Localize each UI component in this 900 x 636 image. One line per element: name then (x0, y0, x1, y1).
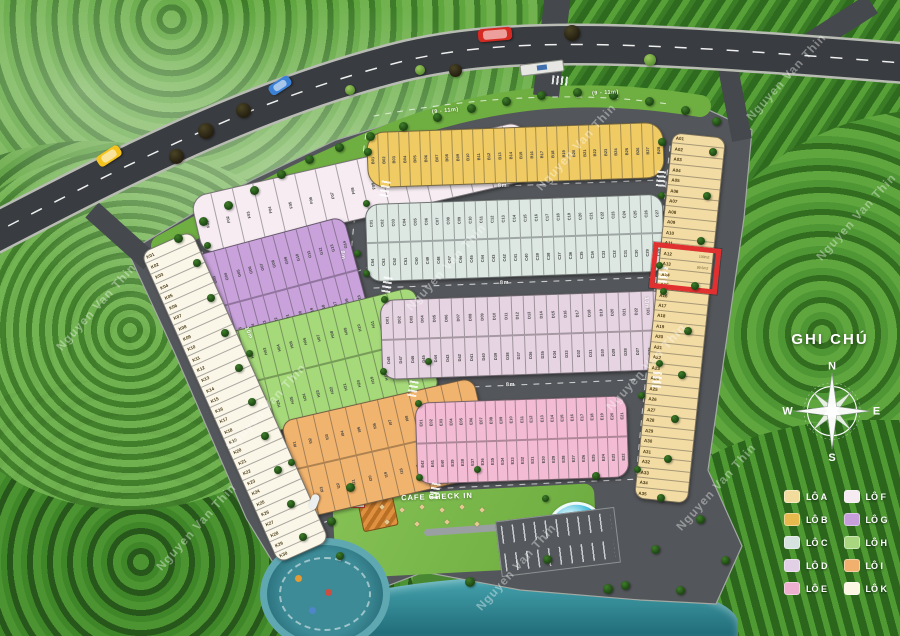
tree-icon (664, 455, 672, 463)
tree-icon (346, 483, 355, 492)
tree-icon (363, 200, 370, 207)
tree-icon (381, 296, 388, 303)
tree-icon (345, 85, 355, 95)
compass-south: S (828, 452, 835, 464)
legend-column: LÔ F LÔ G LÔ H LÔ I LÔ K (844, 490, 888, 595)
tree-icon (678, 371, 686, 379)
tree-icon (671, 415, 679, 423)
tree-icon (415, 65, 425, 75)
tree-icon (204, 242, 211, 249)
tree-icon (592, 472, 600, 480)
tree-icon (676, 586, 685, 595)
legend-title: GHI CHÚ (760, 331, 900, 348)
crosswalk (552, 75, 569, 86)
legend-label: LÔ I (866, 561, 884, 571)
tree-icon (658, 138, 666, 146)
tree-icon (543, 555, 552, 564)
legend-label: LÔ F (866, 492, 887, 502)
road-width-label: 8m (506, 382, 515, 388)
legend: LÔ A LÔ B LÔ C LÔ D LÔ E LÔ F LÔ G LÔ H … (784, 490, 888, 595)
tree-icon (425, 358, 432, 365)
legend-item-lo-b: LÔ B (784, 513, 828, 526)
crosswalk (658, 266, 668, 283)
swatch-lo-g (844, 513, 860, 526)
legend-item-lo-i: LÔ I (844, 559, 888, 572)
tree-icon (327, 517, 336, 526)
tree-icon (465, 577, 475, 587)
block-b: B01B02B03B04B05B06B07B08B09B10B11B12B13B… (366, 122, 665, 188)
swatch-lo-e (784, 582, 800, 595)
tree-icon (287, 500, 295, 508)
tree-icon (697, 237, 705, 245)
tree-icon (288, 459, 295, 466)
tree-icon (449, 64, 462, 77)
tree-icon (224, 201, 233, 210)
legend-item-lo-k: LÔ K (844, 582, 888, 595)
legend-label: LÔ H (866, 538, 888, 548)
tree-icon (660, 288, 667, 295)
tree-icon (467, 104, 476, 113)
tree-icon (363, 270, 370, 277)
tree-icon (305, 155, 314, 164)
branch-road (92, 210, 150, 262)
tree-icon (221, 329, 229, 337)
playground-equipment (325, 589, 332, 596)
tree-icon (366, 132, 375, 141)
crosswalk (656, 170, 666, 187)
tree-icon (415, 400, 422, 407)
tree-icon (399, 122, 408, 131)
tree-icon (235, 364, 243, 372)
swatch-lo-h (844, 536, 860, 549)
tree-icon (712, 117, 721, 126)
compass-north: N (828, 360, 836, 372)
legend-item-lo-g: LÔ G (844, 513, 888, 526)
tree-icon (250, 186, 259, 195)
plot-E22: E22 (618, 437, 628, 476)
legend-label: LÔ E (806, 584, 827, 594)
tree-icon (474, 466, 481, 473)
swatch-lo-k (844, 582, 860, 595)
tree-icon (198, 123, 214, 139)
tree-icon (696, 515, 705, 524)
legend-item-lo-f: LÔ F (844, 490, 888, 503)
legend-item-lo-c: LÔ C (784, 536, 828, 549)
tree-icon (261, 432, 269, 440)
block-d: D01D02D03D04D05D06D07D08D09D10D11D12D13D… (380, 290, 669, 380)
tree-icon (684, 327, 692, 335)
playground-equipment (295, 575, 302, 582)
plot-row: D48D47D46D45D44D43D42D41D40D39D38D37D36D… (382, 329, 667, 379)
tree-icon (657, 494, 665, 502)
tree-icon (644, 54, 656, 66)
tree-icon (603, 584, 613, 594)
legend-label: LÔ B (806, 515, 828, 525)
tree-icon (336, 552, 344, 560)
plot-C27: C27 (652, 195, 663, 232)
tree-icon (277, 170, 286, 179)
crosswalk (652, 371, 662, 388)
tree-icon (274, 466, 282, 474)
tree-icon (638, 392, 645, 399)
block-c: C01C02C03C04C05C06C07C08C09C10C11C12C13C… (365, 194, 666, 282)
legend-item-lo-a: LÔ A (784, 490, 828, 503)
compass-west: W (782, 406, 793, 418)
tree-icon (656, 262, 663, 269)
swatch-lo-f (844, 490, 860, 503)
tree-icon (199, 217, 208, 226)
road-width-label: 8m (498, 183, 507, 189)
legend-column: LÔ A LÔ B LÔ C LÔ D LÔ E (784, 490, 828, 595)
tree-icon (573, 88, 582, 97)
car-roof (483, 29, 508, 40)
tree-icon (721, 556, 730, 565)
legend-label: LÔ D (806, 561, 828, 571)
legend-item-lo-e: LÔ E (784, 582, 828, 595)
tree-icon (236, 103, 251, 118)
tree-icon (621, 581, 630, 590)
playground-equipment (309, 607, 316, 614)
tree-icon (564, 25, 580, 41)
tree-icon (380, 368, 387, 375)
tree-icon (169, 149, 184, 164)
tree-icon (703, 192, 711, 200)
tree-icon (174, 234, 183, 243)
legend-label: LÔ K (866, 584, 888, 594)
tree-icon (542, 495, 549, 502)
tree-icon (651, 545, 660, 554)
tree-icon (502, 97, 511, 106)
tree-icon (207, 294, 215, 302)
road-width-label: 8m (339, 250, 346, 260)
tree-icon (656, 360, 663, 367)
tree-icon (634, 466, 641, 473)
legend-item-lo-h: LÔ H (844, 536, 888, 549)
tree-icon (691, 282, 699, 290)
tree-icon (416, 474, 423, 481)
road-width-label: 8m (500, 280, 509, 286)
legend-label: LÔ C (806, 538, 828, 548)
plot-E21: E21 (616, 396, 626, 435)
compass-east: E (873, 406, 880, 418)
swatch-lo-d (784, 559, 800, 572)
tree-icon (193, 259, 201, 267)
plot-row: B01B02B03B04B05B06B07B08B09B10B11B12B13B… (367, 123, 664, 187)
tree-icon (709, 148, 717, 156)
tree-icon (335, 143, 344, 152)
tree-icon (248, 398, 256, 406)
tree-icon (246, 350, 253, 357)
tree-icon (681, 106, 690, 115)
tree-icon (537, 91, 546, 100)
tree-icon (364, 148, 372, 156)
compass-rose: N E S W (782, 360, 882, 464)
tree-icon (299, 533, 307, 541)
legend-item-lo-d: LÔ D (784, 559, 828, 572)
swatch-lo-c (784, 536, 800, 549)
tree-icon (354, 250, 361, 257)
swatch-lo-b (784, 513, 800, 526)
master-plan-map: CAFE CHECK IN F01F02F03F04F05F06F07F08F0… (0, 0, 900, 636)
legend-label: LÔ G (866, 515, 888, 525)
tree-icon (645, 97, 654, 106)
legend-label: LÔ A (806, 492, 827, 502)
swatch-lo-i (844, 559, 860, 572)
road-width-label: 10m (643, 297, 650, 310)
swatch-lo-a (784, 490, 800, 503)
tree-icon (658, 192, 665, 199)
